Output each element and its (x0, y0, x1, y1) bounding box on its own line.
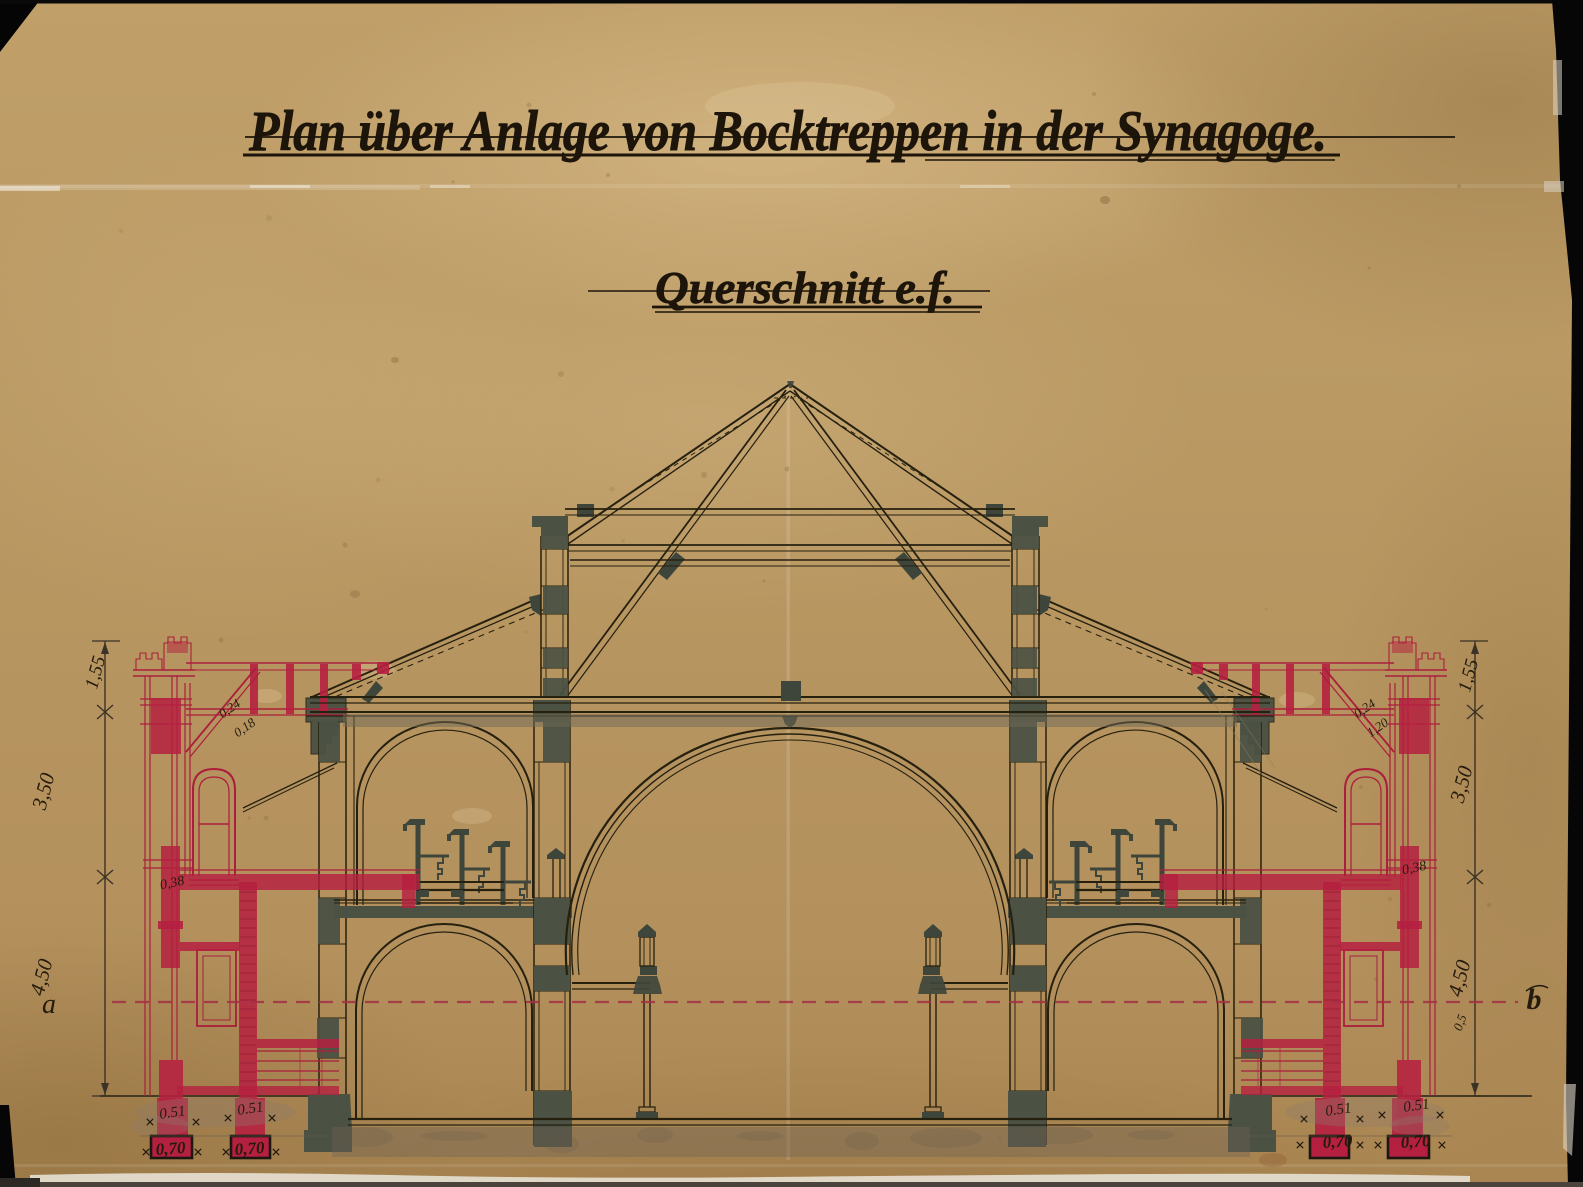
svg-text:0,70: 0,70 (234, 1138, 266, 1159)
svg-text:0,70: 0,70 (1400, 1131, 1432, 1152)
svg-text:0,70: 0,70 (1322, 1131, 1354, 1152)
svg-text:Querschnitt e.f.: Querschnitt e.f. (655, 263, 955, 313)
svg-text:b: b (1527, 983, 1542, 1016)
svg-text:a: a (42, 989, 56, 1020)
svg-text:0,70: 0,70 (155, 1138, 187, 1159)
